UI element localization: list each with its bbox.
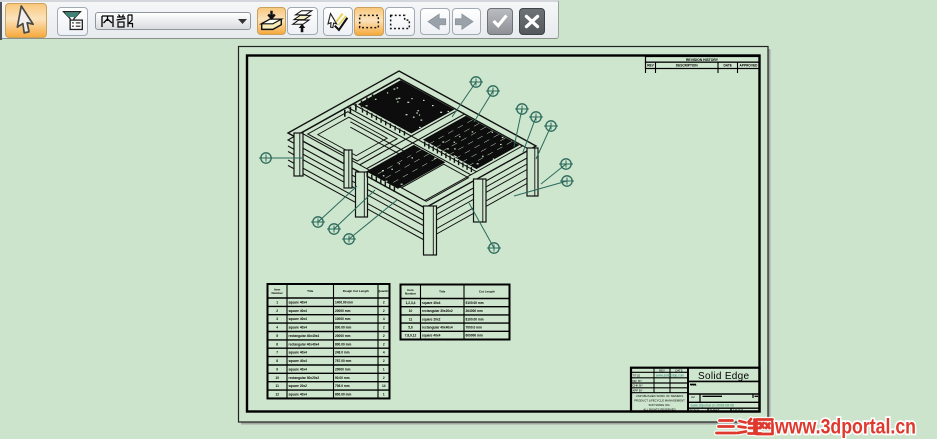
svg-text:Solid Edge: Solid Edge [698, 371, 750, 382]
svg-text:square 40x4: square 40x4 [289, 309, 308, 313]
svg-text:www.solidedge.com: www.solidedge.com [656, 374, 685, 378]
svg-text:SHEET: SHEET [710, 408, 720, 412]
svg-text:2: 2 [383, 301, 385, 305]
svg-text:9: 9 [276, 367, 278, 371]
svg-text:10: 10 [409, 309, 413, 313]
svg-text:PRODUCT LIFECYCLE MANAGEMENT: PRODUCT LIFECYCLE MANAGEMENT [634, 399, 685, 403]
svg-text:2: 2 [383, 342, 385, 346]
svg-text:REV: REV [659, 368, 665, 372]
svg-text:8: 8 [276, 359, 278, 363]
svg-text:www.3dportal.cn-2008-08-08: www.3dportal.cn-2008-08-08 [691, 403, 734, 407]
svg-text:1400.00 mm: 1400.00 mm [335, 301, 353, 305]
svg-text:20000 mm: 20000 mm [335, 367, 351, 371]
svg-text:7: 7 [276, 351, 278, 355]
svg-text:DATE: DATE [675, 368, 682, 372]
svg-text:7,8,9,12: 7,8,9,12 [405, 334, 417, 338]
svg-text:APPROVED: APPROVED [740, 64, 759, 68]
svg-text:Number: Number [405, 292, 417, 296]
svg-text:5100.00 mm: 5100.00 mm [466, 301, 484, 305]
svg-text:10: 10 [275, 376, 279, 380]
svg-text:2: 2 [276, 309, 278, 313]
svg-text:20000 mm: 20000 mm [335, 334, 351, 338]
svg-text:square 40x4: square 40x4 [289, 351, 308, 355]
svg-text:REV: REV [647, 64, 654, 68]
svg-text:4: 4 [383, 351, 385, 355]
svg-text:4: 4 [276, 326, 278, 330]
svg-text:3: 3 [276, 317, 278, 321]
svg-text:800.00 mm: 800.00 mm [335, 342, 351, 346]
svg-text:square 40x4: square 40x4 [422, 334, 441, 338]
svg-text:1,2,3,4: 1,2,3,4 [406, 301, 416, 305]
svg-text:rectangular 40x40x4: rectangular 40x40x4 [289, 342, 320, 346]
svg-text:rectangular 30x20x2: rectangular 30x20x2 [422, 309, 453, 313]
svg-text:Title: Title [307, 289, 313, 293]
svg-text:11: 11 [409, 317, 413, 321]
svg-text:90.00 mm: 90.00 mm [335, 376, 350, 380]
svg-text:square 40x4: square 40x4 [422, 301, 441, 305]
svg-text:708.0 mm: 708.0 mm [335, 384, 350, 388]
svg-text:Rough Cut Length: Rough Cut Length [343, 289, 369, 293]
svg-text:11: 11 [276, 384, 280, 388]
svg-text:DR. BY: DR. BY [633, 379, 642, 383]
svg-text:square 40x4: square 40x4 [289, 317, 308, 321]
svg-text:787.00 mm: 787.00 mm [335, 359, 351, 363]
svg-text:1: 1 [276, 301, 278, 305]
svg-text:6: 6 [276, 342, 278, 346]
svg-text:DESCRIPTION: DESCRIPTION [676, 64, 698, 68]
svg-text:14: 14 [382, 384, 386, 388]
svg-text:1: 1 [383, 393, 385, 397]
svg-text:1: 1 [383, 367, 385, 371]
svg-text:www.3dportal.cn: www.3dportal.cn [774, 415, 916, 439]
svg-text:2: 2 [383, 334, 385, 338]
svg-text:square 20x2: square 20x2 [422, 317, 441, 321]
svg-text:square 40x4: square 40x4 [289, 359, 308, 363]
svg-text:rectangular 40x40x4: rectangular 40x40x4 [289, 334, 320, 338]
svg-text:SOFTWARE INC.: SOFTWARE INC. [648, 403, 670, 407]
svg-text:800.00 mm: 800.00 mm [335, 393, 351, 397]
svg-text:264000 mm: 264000 mm [466, 309, 483, 313]
svg-text:1111111: 1111111 [733, 408, 744, 412]
svg-text:ALL RIGHTS RESERVED: ALL RIGHTS RESERVED [643, 407, 675, 411]
svg-text:10000 mm: 10000 mm [335, 317, 351, 321]
svg-text:7000.0 mm: 7000.0 mm [466, 326, 482, 330]
svg-text:APP BY: APP BY [633, 389, 643, 393]
svg-text:rectangular 40x40x4: rectangular 40x40x4 [422, 326, 453, 330]
svg-text:square 40x4: square 40x4 [289, 326, 308, 330]
svg-text:REVISION HISTORY: REVISION HISTORY [686, 58, 719, 62]
svg-text:8100.00 mm: 8100.00 mm [466, 317, 484, 321]
svg-text:800.00 mm: 800.00 mm [335, 326, 351, 330]
svg-text:5: 5 [276, 334, 278, 338]
svg-text:609000 mm: 609000 mm [466, 334, 483, 338]
svg-text:DATE: DATE [723, 64, 731, 68]
svg-text:Title: Title [439, 290, 445, 294]
svg-text:A2: A2 [691, 395, 695, 399]
svg-text:square 40x4: square 40x4 [289, 393, 308, 397]
svg-text:Number: Number [272, 291, 284, 295]
svg-text:12: 12 [275, 393, 279, 397]
svg-text:4: 4 [383, 317, 385, 321]
svg-text:SCALE: SCALE [690, 408, 700, 412]
svg-text:UNPUBLISHED WORK OF SIEMENS: UNPUBLISHED WORK OF SIEMENS [636, 394, 684, 398]
svg-text:Quantity: Quantity [378, 289, 390, 293]
svg-text:248.0 mm: 248.0 mm [335, 351, 350, 355]
svg-text:square 20x2: square 20x2 [289, 384, 308, 388]
svg-text:Cut Length: Cut Length [479, 290, 495, 294]
svg-text:2: 2 [383, 359, 385, 363]
svg-text:2: 2 [383, 309, 385, 313]
svg-text:CHK BY: CHK BY [633, 384, 644, 388]
svg-text:2: 2 [383, 326, 385, 330]
svg-text:5,6: 5,6 [408, 326, 413, 330]
svg-text:2: 2 [383, 376, 385, 380]
svg-text:TITLE: TITLE [633, 374, 641, 378]
svg-text:square 40x4: square 40x4 [289, 301, 308, 305]
svg-text:square 40x4: square 40x4 [289, 367, 308, 371]
svg-text:rectangular 30x20x2: rectangular 30x20x2 [289, 376, 320, 380]
svg-text:20000 mm: 20000 mm [335, 309, 351, 313]
